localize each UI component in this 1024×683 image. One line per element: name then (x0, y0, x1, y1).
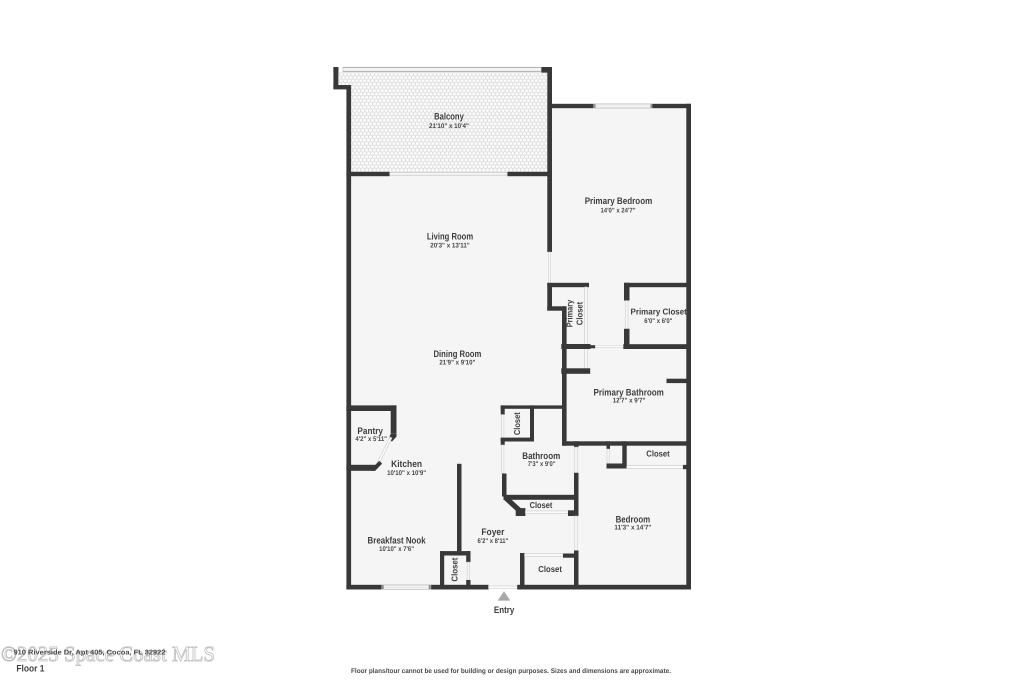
svg-text:Closet: Closet (574, 302, 584, 326)
svg-text:10'10" x 7'6": 10'10" x 7'6" (379, 546, 414, 553)
svg-text:Entry: Entry (494, 605, 515, 616)
svg-text:14'0" x 24'7": 14'0" x 24'7" (600, 207, 635, 214)
svg-text:Floor plans/tour cannot be use: Floor plans/tour cannot be used for buil… (351, 668, 671, 675)
svg-text:21'9" x 9'10": 21'9" x 9'10" (439, 359, 475, 366)
svg-text:21'10" x 10'4": 21'10" x 10'4" (429, 123, 469, 130)
svg-text:Closet: Closet (450, 557, 460, 581)
svg-text:910 Riverside Dr, Apt 405, Coc: 910 Riverside Dr, Apt 405, Cocoa, FL 329… (14, 649, 166, 657)
svg-text:20'3" x 13'11": 20'3" x 13'11" (430, 243, 470, 250)
svg-text:7'3" x 9'0": 7'3" x 9'0" (528, 461, 556, 468)
svg-text:Balcony: Balcony (434, 112, 464, 123)
svg-text:Breakfast Nook: Breakfast Nook (368, 536, 427, 547)
svg-text:10'10" x 10'9": 10'10" x 10'9" (387, 470, 426, 477)
svg-text:Dining Room: Dining Room (434, 349, 482, 360)
svg-text:Kitchen: Kitchen (391, 459, 422, 470)
svg-text:Closet: Closet (538, 564, 562, 574)
svg-text:Primary: Primary (565, 300, 575, 328)
svg-text:Primary Bedroom: Primary Bedroom (585, 196, 653, 207)
svg-text:Closet: Closet (530, 500, 553, 510)
svg-text:12'7" x 9'7": 12'7" x 9'7" (613, 398, 646, 405)
svg-text:Closet: Closet (512, 412, 522, 435)
svg-text:6'0" x 6'0": 6'0" x 6'0" (644, 318, 672, 325)
svg-text:4'2" x 5'11": 4'2" x 5'11" (355, 436, 387, 443)
svg-text:Living Room: Living Room (427, 231, 473, 242)
svg-text:Primary Closet: Primary Closet (631, 306, 687, 316)
svg-text:Floor 1: Floor 1 (16, 663, 45, 674)
svg-text:11'3" x 14'7": 11'3" x 14'7" (614, 525, 651, 532)
svg-text:6'2" x 8'11": 6'2" x 8'11" (477, 538, 508, 545)
svg-text:Foyer: Foyer (481, 527, 504, 538)
svg-text:Closet: Closet (646, 449, 670, 459)
